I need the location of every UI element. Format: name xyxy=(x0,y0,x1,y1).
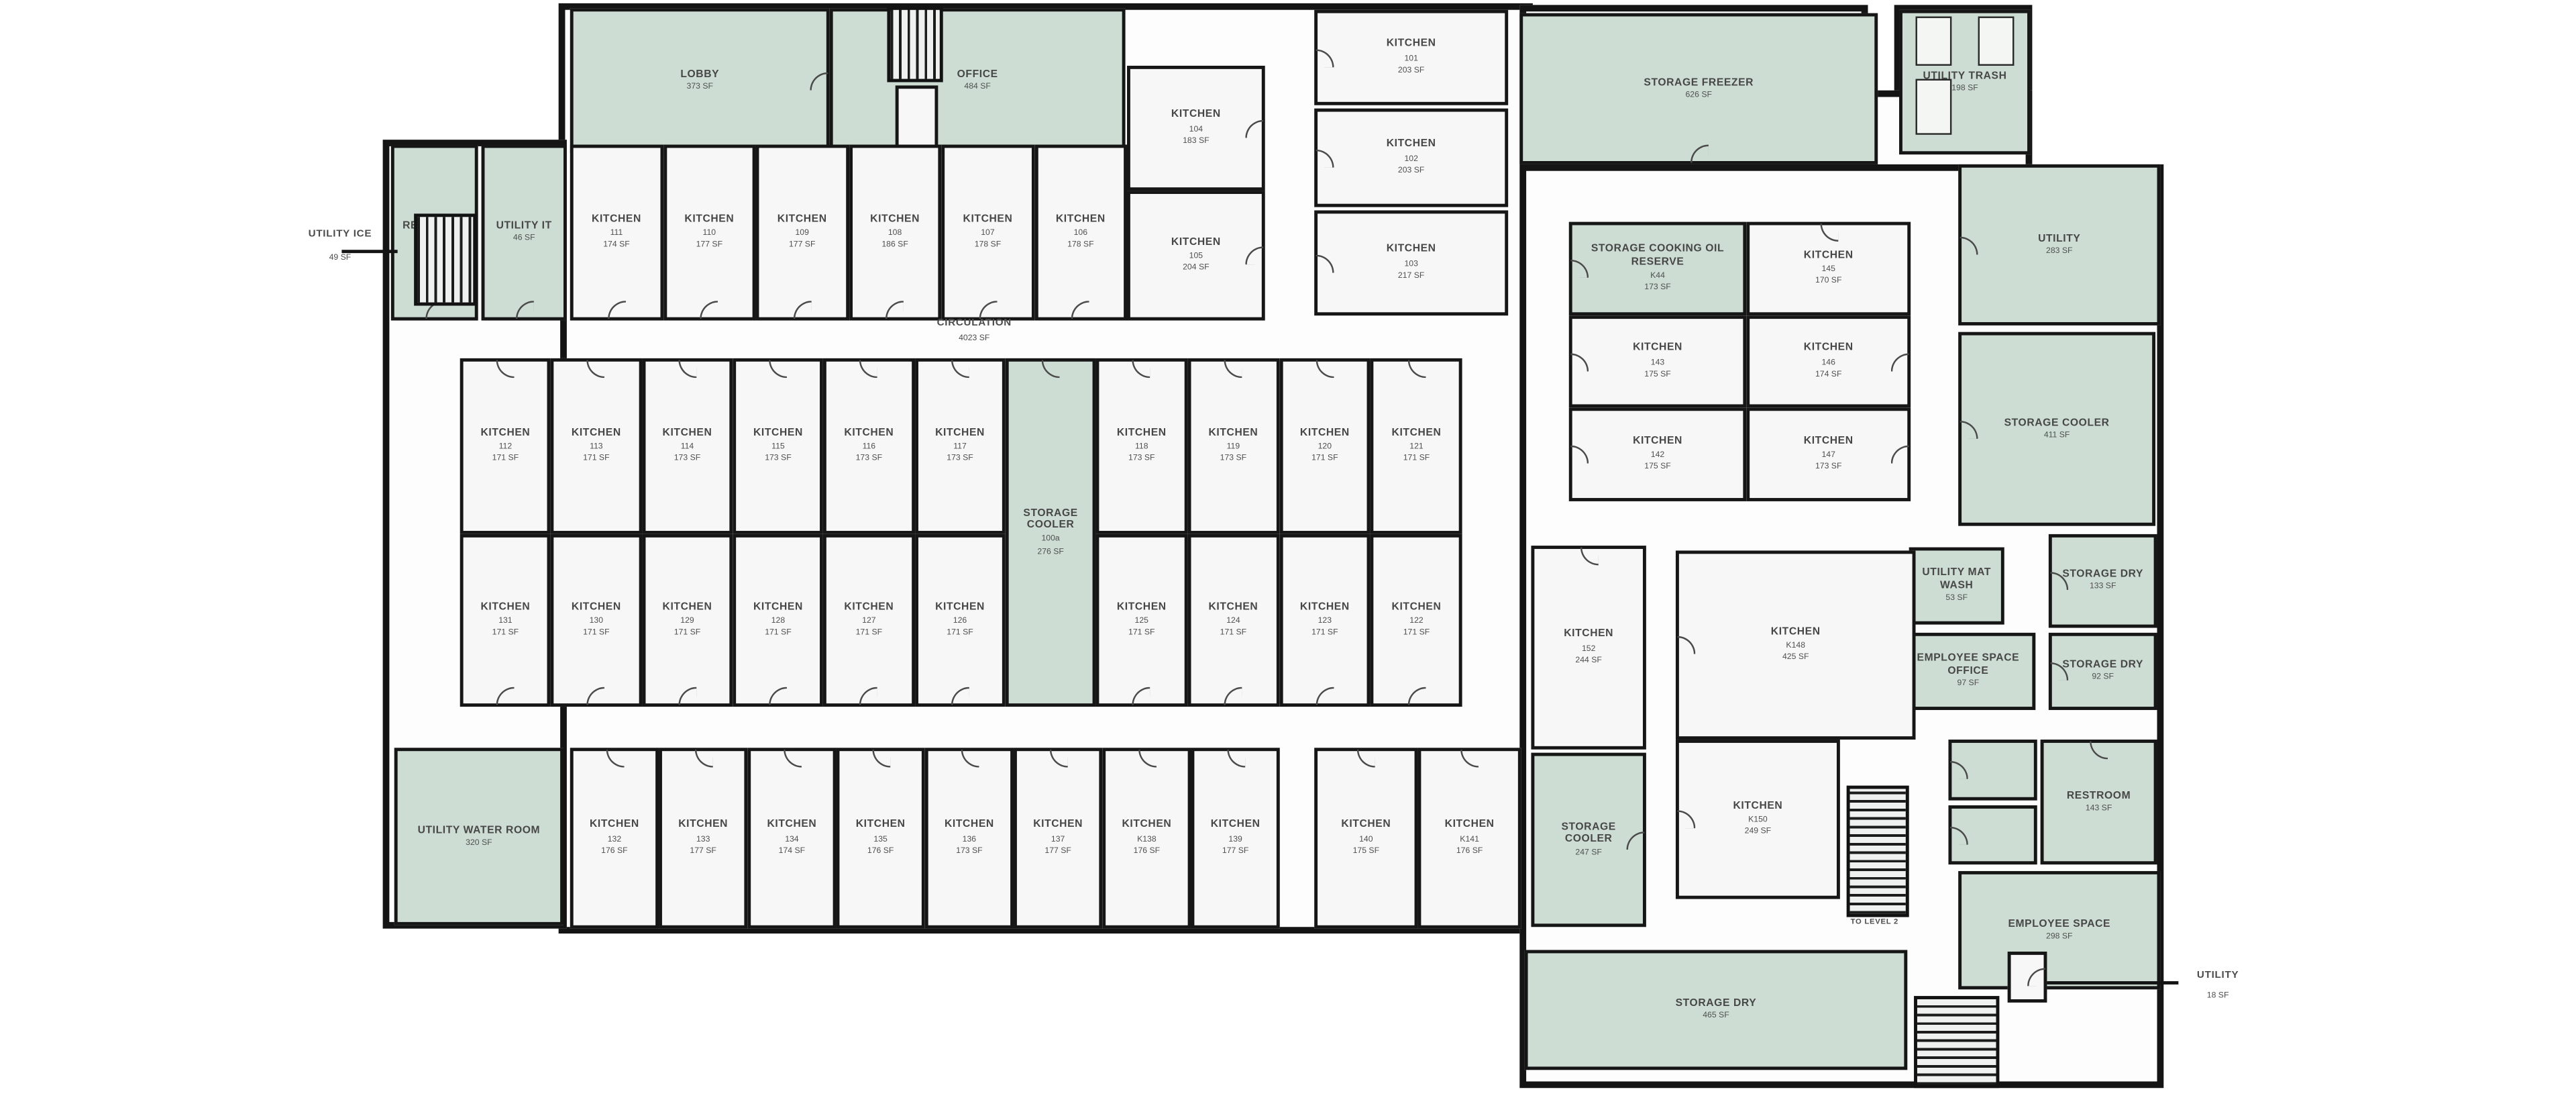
room-name: KITCHEN xyxy=(1211,819,1260,832)
room-kitchen-111: KITCHEN111174 SF xyxy=(570,145,663,321)
room-name: STORAGE DRY xyxy=(2062,659,2143,672)
room-area: 178 SF xyxy=(1067,240,1093,252)
circulation-label: CIRCULATION 4023 SF xyxy=(900,317,1048,344)
room-name: KITCHEN xyxy=(1387,139,1436,152)
room-name: KITCHEN xyxy=(684,213,734,226)
room-number: 125 xyxy=(1135,617,1148,628)
room-number: 133 xyxy=(696,834,710,846)
room-area: 204 SF xyxy=(1183,264,1209,275)
room-name: LOBBY xyxy=(680,68,719,81)
room-number: 152 xyxy=(1582,644,1595,655)
utility-ice-label: UTILITY ICE 49 SF xyxy=(306,228,375,264)
room-kitchen-119: KITCHEN119173 SF xyxy=(1187,358,1279,534)
utility-ice-area: 49 SF xyxy=(306,254,375,264)
room-kitchen-121: KITCHEN121171 SF xyxy=(1371,358,1462,534)
room-kitchen-k148: KITCHENK148425 SF xyxy=(1676,550,1916,740)
room-restroom-east: RESTROOM143 SF xyxy=(2041,740,2157,864)
room-area: 176 SF xyxy=(601,846,627,858)
room-name: STORAGE COOLER xyxy=(1538,821,1640,847)
room-label: KITCHEN137177 SF xyxy=(1017,751,1099,925)
room-label: KITCHEN119173 SF xyxy=(1191,362,1276,531)
room-number: 106 xyxy=(1074,229,1087,240)
room-number: K141 xyxy=(1460,834,1479,846)
room-area: 484 SF xyxy=(964,82,990,93)
room-name: KITCHEN xyxy=(1300,427,1350,440)
room-name: KITCHEN xyxy=(1392,427,1442,440)
room-office: OFFICE484 SF xyxy=(830,8,1126,153)
room-number: K148 xyxy=(1786,641,1805,652)
room-label: KITCHEN134174 SF xyxy=(751,751,833,925)
trash-bin-icon xyxy=(1978,16,2015,65)
room-kitchen-108: KITCHEN108186 SF xyxy=(849,145,941,321)
room-label: KITCHEN108186 SF xyxy=(852,148,938,317)
stairs xyxy=(887,7,943,83)
room-name: UTILITY WATER ROOM xyxy=(418,824,541,837)
room-kitchen-139: KITCHEN139177 SF xyxy=(1191,748,1280,928)
room-number: 128 xyxy=(771,617,785,628)
room-label: STORAGE COOLER247 SF xyxy=(1534,756,1643,924)
room-name: KITCHEN xyxy=(1733,800,1782,813)
room-kitchen-115: KITCHEN115173 SF xyxy=(733,358,823,534)
room-number: 132 xyxy=(608,834,621,846)
room-area: 171 SF xyxy=(1128,628,1155,640)
room-label: KITCHEN127171 SF xyxy=(827,538,912,703)
room-number: 111 xyxy=(610,229,623,240)
room-kitchen-131: KITCHEN131171 SF xyxy=(460,534,551,707)
room-area: 174 SF xyxy=(779,846,805,858)
room-label: UTILITY MAT WASH53 SF xyxy=(1913,550,2001,621)
room-area: 171 SF xyxy=(947,628,973,640)
room-name: KITCHEN xyxy=(963,213,1013,226)
room-name: KITCHEN xyxy=(1633,342,1682,355)
room-label: KITCHEN102203 SF xyxy=(1318,112,1505,204)
room-kitchen-k138: KITCHENK138176 SF xyxy=(1102,748,1191,928)
room-kitchen-117: KITCHEN117173 SF xyxy=(914,358,1005,534)
room-kitchen-122: KITCHEN122171 SF xyxy=(1371,534,1462,707)
room-name: KITCHEN xyxy=(753,601,803,614)
room-area: 143 SF xyxy=(2086,803,2112,815)
room-storage-cooler-east: STORAGE COOLER411 SF xyxy=(1958,332,2155,526)
floor-plan-canvas: CIRCULATION 4023 SF UTILITY ICE 49 SF UT… xyxy=(0,0,2576,1108)
room-label: KITCHEN130171 SF xyxy=(554,538,639,703)
room-label: KITCHEN118173 SF xyxy=(1099,362,1184,531)
trash-bin-icon xyxy=(1916,16,1952,65)
room-label: LOBBY373 SF xyxy=(574,11,826,150)
room-area: 176 SF xyxy=(1134,846,1160,858)
room-number: 116 xyxy=(863,442,876,454)
room-name: UTILITY xyxy=(2038,233,2080,246)
room-name: KITCHEN xyxy=(592,213,641,226)
room-area: 133 SF xyxy=(2090,582,2116,593)
room-label: KITCHEN129171 SF xyxy=(645,538,730,703)
room-area: 171 SF xyxy=(583,628,609,640)
room-storage-cooler-247: STORAGE COOLER247 SF xyxy=(1531,753,1646,927)
room-label: STORAGE DRY133 SF xyxy=(2052,538,2154,625)
room-label: KITCHENK141176 SF xyxy=(1421,751,1517,925)
room-label: STORAGE FREEZER626 SF xyxy=(1523,16,1874,161)
room-kitchen-105: KITCHEN105204 SF xyxy=(1127,191,1265,320)
room-label: KITCHEN112171 SF xyxy=(464,362,548,531)
room-kitchen-130: KITCHEN130171 SF xyxy=(551,534,641,707)
room-area: 97 SF xyxy=(1957,679,1980,691)
room-area: 171 SF xyxy=(492,454,519,466)
room-label: OFFICE484 SF xyxy=(833,11,1122,150)
room-label: KITCHEN142175 SF xyxy=(1572,411,1743,498)
circulation-title: CIRCULATION xyxy=(900,317,1048,330)
room-name: OFFICE xyxy=(957,68,998,81)
room-number: 147 xyxy=(1821,450,1835,462)
room-label: KITCHENK150249 SF xyxy=(1679,743,1837,896)
stairs xyxy=(1847,786,1909,917)
room-utility-east: UTILITY283 SF xyxy=(1958,164,2160,325)
room-number: 135 xyxy=(873,834,887,846)
room-area: 171 SF xyxy=(765,628,791,640)
room-lobby: LOBBY373 SF xyxy=(570,8,830,153)
room-label: KITCHEN124171 SF xyxy=(1191,538,1276,703)
room-name: KITCHEN xyxy=(1392,601,1442,614)
room-employee-space-office: EMPLOYEE SPACE OFFICE97 SF xyxy=(1900,633,2035,710)
room-label: KITCHENK138176 SF xyxy=(1106,751,1187,925)
to-level-2-label: TO LEVEL 2 xyxy=(1820,917,1929,926)
room-label: STORAGE COOLER411 SF xyxy=(1962,336,2152,523)
room-number: 117 xyxy=(953,442,967,454)
room-area: 171 SF xyxy=(1403,628,1430,640)
room-name: UTILITY MAT WASH xyxy=(1916,567,1998,593)
room-area: 173 SF xyxy=(956,846,982,858)
room-label: KITCHEN121171 SF xyxy=(1374,362,1459,531)
room-area: 175 SF xyxy=(1644,370,1670,381)
room-storage-dry-465: STORAGE DRY465 SF xyxy=(1525,950,1908,1070)
room-name: KITCHEN xyxy=(1804,342,1854,355)
room-area: 177 SF xyxy=(1044,846,1071,858)
room-area: 276 SF xyxy=(1037,547,1063,558)
room-area: 425 SF xyxy=(1782,653,1809,664)
room-name: KITCHEN xyxy=(590,819,639,832)
room-kitchen-143: KITCHEN143175 SF xyxy=(1569,315,1746,407)
room-name: STORAGE COOLER xyxy=(1012,507,1089,533)
room-area: 173 SF xyxy=(1815,462,1841,474)
room-label: KITCHEN125171 SF xyxy=(1099,538,1184,703)
room-name: KITCHEN xyxy=(777,213,827,226)
room-area: 411 SF xyxy=(2044,430,2070,442)
room-name: KITCHEN xyxy=(1208,427,1258,440)
room-kitchen-135: KITCHEN135176 SF xyxy=(837,748,925,928)
room-label: KITCHEN140175 SF xyxy=(1318,751,1414,925)
room-name: KITCHEN xyxy=(1056,213,1106,226)
room-area: 173 SF xyxy=(765,454,791,466)
room-number: 109 xyxy=(795,229,808,240)
room-label: KITCHEN128171 SF xyxy=(736,538,820,703)
room-number: 126 xyxy=(953,617,967,628)
room-name: EMPLOYEE SPACE OFFICE xyxy=(1907,653,2029,678)
room-area: 247 SF xyxy=(1575,848,1601,859)
room-area: 186 SF xyxy=(881,240,908,252)
room-name: KITCHEN xyxy=(1771,626,1821,639)
room-kitchen-127: KITCHEN127171 SF xyxy=(824,534,914,707)
room-name: KITCHEN xyxy=(1341,819,1391,832)
room-number: 114 xyxy=(681,442,694,454)
room-name: KITCHEN xyxy=(1033,819,1083,832)
room-kitchen-147: KITCHEN147173 SF xyxy=(1746,407,1911,501)
room-number: 110 xyxy=(703,229,716,240)
room-kitchen-125: KITCHEN125171 SF xyxy=(1095,534,1187,707)
room-number: K44 xyxy=(1650,271,1665,283)
door-arc-icon xyxy=(1950,761,1968,779)
room-kitchen-146: KITCHEN146174 SF xyxy=(1746,315,1911,407)
room-number: 136 xyxy=(963,834,976,846)
room-kitchen-k150: KITCHENK150249 SF xyxy=(1676,740,1840,899)
room-kitchen-113: KITCHEN113171 SF xyxy=(551,358,641,534)
room-utility-mat-wash: UTILITY MAT WASH53 SF xyxy=(1909,548,2004,625)
room-area: 176 SF xyxy=(867,846,894,858)
room-label: KITCHEN136173 SF xyxy=(928,751,1010,925)
stairs xyxy=(414,213,476,305)
room-kitchen-110: KITCHEN110177 SF xyxy=(663,145,755,321)
room-area: 170 SF xyxy=(1815,276,1841,288)
room-number: 121 xyxy=(1409,442,1423,454)
room-kitchen-k141: KITCHENK141176 SF xyxy=(1417,748,1521,928)
room-label: UTILITY WATER ROOM320 SF xyxy=(398,751,560,922)
room-elevator-shaft xyxy=(896,85,938,151)
room-name: KITCHEN xyxy=(1171,109,1221,122)
room-label: KITCHEN111174 SF xyxy=(574,148,660,317)
utility-ice-title: UTILITY ICE xyxy=(306,228,375,240)
room-area: 53 SF xyxy=(1945,593,1968,605)
room-name: KITCHEN xyxy=(1804,436,1854,448)
room-area: 171 SF xyxy=(674,628,700,640)
room-area: 174 SF xyxy=(1815,370,1841,381)
door-arc-icon xyxy=(1950,826,1968,844)
room-label: KITCHEN107178 SF xyxy=(945,148,1031,317)
room-label: KITCHEN116173 SF xyxy=(827,362,912,531)
room-name: KITCHEN xyxy=(678,819,728,832)
room-area: 173 SF xyxy=(1644,283,1670,295)
room-label: KITCHEN126171 SF xyxy=(918,538,1002,703)
room-number: 139 xyxy=(1228,834,1242,846)
room-employee-space: EMPLOYEE SPACE298 SF xyxy=(1958,871,2160,989)
room-kitchen-124: KITCHEN124171 SF xyxy=(1187,534,1279,707)
room-kitchen-118: KITCHEN118173 SF xyxy=(1095,358,1187,534)
room-label: KITCHEN143175 SF xyxy=(1572,319,1743,404)
room-kitchen-116: KITCHEN116173 SF xyxy=(824,358,914,534)
room-area: 203 SF xyxy=(1398,66,1424,77)
room-name: STORAGE COOLER xyxy=(2004,417,2110,430)
room-name: KITCHEN xyxy=(844,601,894,614)
trash-bin-icon xyxy=(1916,79,1952,135)
room-kitchen-109: KITCHEN109177 SF xyxy=(756,145,849,321)
room-kitchen-132: KITCHEN132176 SF xyxy=(570,748,659,928)
room-area: 173 SF xyxy=(947,454,973,466)
room-name: KITCHEN xyxy=(945,819,994,832)
room-number: 137 xyxy=(1051,834,1065,846)
circulation-area: 4023 SF xyxy=(900,334,1048,344)
room-label: KITCHEN135176 SF xyxy=(839,751,921,925)
room-label: UTILITY283 SF xyxy=(1962,168,2157,322)
utility-small-area: 18 SF xyxy=(2172,992,2264,1002)
room-label: KITCHEN123171 SF xyxy=(1282,538,1367,703)
room-name: KITCHEN xyxy=(1633,436,1682,448)
room-kitchen-114: KITCHEN114173 SF xyxy=(642,358,733,534)
room-area: 171 SF xyxy=(856,628,882,640)
room-kitchen-142: KITCHEN142175 SF xyxy=(1569,407,1746,501)
room-utility-water-room: UTILITY WATER ROOM320 SF xyxy=(394,748,563,925)
room-area: 217 SF xyxy=(1398,271,1424,283)
room-name: KITCHEN xyxy=(1564,629,1613,642)
room-number: 123 xyxy=(1318,617,1332,628)
room-utility-it: UTILITY IT46 SF xyxy=(482,145,567,321)
room-label: KITCHEN120171 SF xyxy=(1282,362,1367,531)
room-name: KITCHEN xyxy=(844,427,894,440)
room-label: KITCHEN114173 SF xyxy=(645,362,730,531)
room-label: STORAGE DRY465 SF xyxy=(1528,953,1904,1066)
room-utility-18 xyxy=(2008,952,2047,1003)
room-kitchen-126: KITCHEN126171 SF xyxy=(914,534,1005,707)
room-number: 129 xyxy=(680,617,694,628)
room-name: KITCHEN xyxy=(480,601,530,614)
room-kitchen-133: KITCHEN133177 SF xyxy=(659,748,747,928)
room-number: 145 xyxy=(1821,265,1835,276)
room-kitchen-136: KITCHEN136173 SF xyxy=(925,748,1014,928)
room-number: 103 xyxy=(1404,259,1417,270)
room-name: STORAGE DRY xyxy=(2062,568,2143,581)
room-label: STORAGE DRY92 SF xyxy=(2052,636,2154,707)
room-name: KITCHEN xyxy=(935,601,985,614)
room-number: K138 xyxy=(1137,834,1157,846)
room-number: 124 xyxy=(1226,617,1240,628)
room-number: 108 xyxy=(888,229,902,240)
room-area: 249 SF xyxy=(1745,827,1771,839)
room-kitchen-129: KITCHEN129171 SF xyxy=(642,534,733,707)
room-storage-dry-92: STORAGE DRY92 SF xyxy=(2049,633,2157,710)
room-name: STORAGE DRY xyxy=(1676,998,1757,1011)
room-number: 101 xyxy=(1404,54,1417,65)
room-label: KITCHEN104183 SF xyxy=(1130,69,1262,187)
to-level-2-title: TO LEVEL 2 xyxy=(1820,917,1929,926)
room-label: KITCHEN103217 SF xyxy=(1318,213,1505,312)
room-storage-cooking-oil-reserve: STORAGE COOKING OIL RESERVEK44173 SF xyxy=(1569,222,1746,316)
room-number: 134 xyxy=(785,834,798,846)
room-label: UTILITY IT46 SF xyxy=(484,148,563,317)
room-name: STORAGE FREEZER xyxy=(1644,77,1754,89)
room-area: 177 SF xyxy=(789,240,815,252)
room-area: 171 SF xyxy=(1403,454,1430,466)
room-kitchen-128: KITCHEN128171 SF xyxy=(733,534,823,707)
room-restroom-stall-b xyxy=(1948,805,2037,864)
room-kitchen-103: KITCHEN103217 SF xyxy=(1314,210,1508,315)
room-kitchen-102: KITCHEN102203 SF xyxy=(1314,109,1508,207)
room-area: 46 SF xyxy=(513,234,535,245)
room-area: 177 SF xyxy=(696,240,722,252)
room-number: 102 xyxy=(1404,154,1417,165)
room-label: STORAGE COOKING OIL RESERVEK44173 SF xyxy=(1572,225,1743,313)
room-kitchen-134: KITCHEN134174 SF xyxy=(747,748,836,928)
room-name: KITCHEN xyxy=(870,213,920,226)
room-name: KITCHEN xyxy=(572,427,621,440)
room-label: KITCHEN117173 SF xyxy=(918,362,1002,531)
room-area: 175 SF xyxy=(1644,462,1670,474)
room-label: KITCHEN101203 SF xyxy=(1318,13,1505,102)
room-name: KITCHEN xyxy=(935,427,985,440)
room-area: 178 SF xyxy=(975,240,1001,252)
room-label: EMPLOYEE SPACE298 SF xyxy=(1962,874,2157,987)
room-label: RESTROOM143 SF xyxy=(2044,743,2154,861)
room-number: 107 xyxy=(981,229,994,240)
room-number: 105 xyxy=(1189,252,1203,263)
room-kitchen-145: KITCHEN145170 SF xyxy=(1746,222,1911,316)
door-arc-icon xyxy=(2027,968,2045,986)
room-name: EMPLOYEE SPACE xyxy=(2008,918,2110,931)
room-number: 122 xyxy=(1409,617,1423,628)
room-area: 244 SF xyxy=(1575,656,1601,667)
room-label: KITCHEN122171 SF xyxy=(1374,538,1459,703)
room-number: 142 xyxy=(1651,450,1664,462)
room-label: KITCHEN115173 SF xyxy=(736,362,820,531)
room-label: KITCHEN132176 SF xyxy=(574,751,655,925)
room-number: 118 xyxy=(1135,442,1148,454)
room-kitchen-120: KITCHEN120171 SF xyxy=(1279,358,1371,534)
room-label: KITCHEN133177 SF xyxy=(662,751,744,925)
room-area: 183 SF xyxy=(1183,136,1209,148)
room-area: 626 SF xyxy=(1686,90,1712,101)
room-kitchen-107: KITCHEN107178 SF xyxy=(941,145,1034,321)
room-area: 171 SF xyxy=(1311,628,1338,640)
room-area: 177 SF xyxy=(1222,846,1248,858)
room-name: KITCHEN xyxy=(1208,601,1258,614)
room-name: KITCHEN xyxy=(480,427,530,440)
room-storage-dry-133: STORAGE DRY133 SF xyxy=(2049,534,2157,628)
room-area: 92 SF xyxy=(2092,672,2114,684)
room-name: KITCHEN xyxy=(1804,250,1854,262)
room-kitchen-112: KITCHEN112171 SF xyxy=(460,358,551,534)
room-label: KITCHEN146174 SF xyxy=(1750,319,1907,404)
room-kitchen-104: KITCHEN104183 SF xyxy=(1127,66,1265,191)
room-area: 176 SF xyxy=(1456,846,1483,858)
room-number: 119 xyxy=(1227,442,1240,454)
room-label: KITCHEN131171 SF xyxy=(464,538,548,703)
room-area: 465 SF xyxy=(1703,1011,1729,1023)
room-name: KITCHEN xyxy=(663,601,712,614)
room-name: KITCHEN xyxy=(1117,601,1167,614)
room-name: KITCHEN xyxy=(1387,244,1436,256)
room-kitchen-152: KITCHEN152244 SF xyxy=(1531,546,1646,750)
room-label: EMPLOYEE SPACE OFFICE97 SF xyxy=(1904,636,2032,707)
room-kitchen-137: KITCHEN137177 SF xyxy=(1014,748,1102,928)
room-name: STORAGE COOKING OIL RESERVE xyxy=(1576,244,1740,269)
room-number: 127 xyxy=(862,617,875,628)
room-number: 146 xyxy=(1821,358,1835,369)
room-storage-cooler-100a: STORAGE COOLER100a276 SF xyxy=(1006,358,1096,707)
room-number: 120 xyxy=(1318,442,1332,454)
leader-line xyxy=(2047,981,2178,984)
room-area: 171 SF xyxy=(1311,454,1338,466)
room-name: KITCHEN xyxy=(663,427,712,440)
room-area: 171 SF xyxy=(583,454,609,466)
room-area: 298 SF xyxy=(2046,931,2072,943)
room-number: 143 xyxy=(1651,358,1664,369)
room-name: KITCHEN xyxy=(1300,601,1350,614)
room-name: RESTROOM xyxy=(2067,790,2131,803)
room-area: 198 SF xyxy=(1951,83,1978,95)
stairs xyxy=(1914,996,1999,1088)
room-area: 173 SF xyxy=(1128,454,1155,466)
room-kitchen-123: KITCHEN123171 SF xyxy=(1279,534,1371,707)
room-label: KITCHEN106178 SF xyxy=(1038,148,1124,317)
room-name: KITCHEN xyxy=(856,819,906,832)
room-name: KITCHEN xyxy=(767,819,816,832)
room-label: KITCHEN152244 SF xyxy=(1534,549,1643,746)
utility-small-title: UTILITY xyxy=(2172,970,2264,982)
room-name: KITCHEN xyxy=(1171,236,1221,249)
